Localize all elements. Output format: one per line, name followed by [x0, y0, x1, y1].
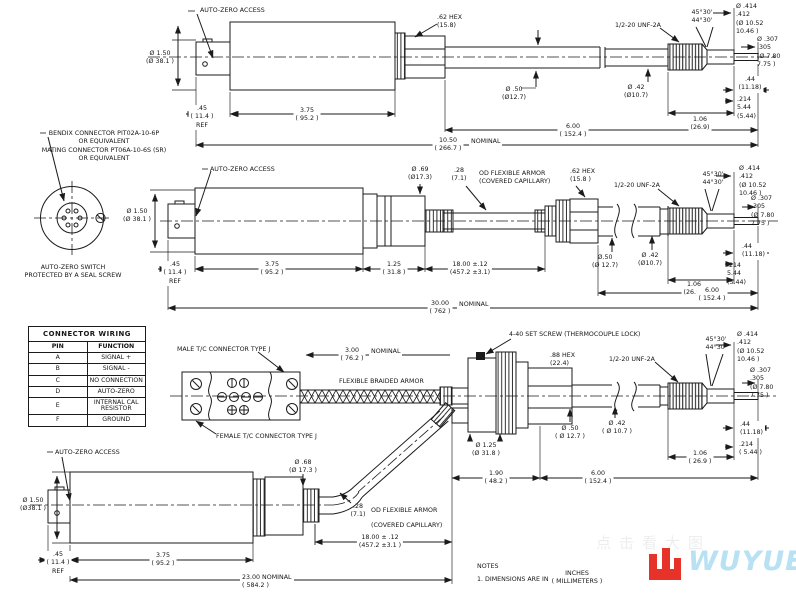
- row2-dia-42-label: Ø .42 (Ø10.7): [638, 252, 662, 269]
- row3-dia-50-label: Ø .50 ( Ø 12.7 ): [555, 425, 585, 442]
- table-title: CONNECTOR WIRING: [29, 327, 146, 342]
- function-cell: INTERNAL CAL RESISTOR: [87, 397, 146, 414]
- row2-dim-375-label: 3.75 ( 95.2 ): [259, 261, 286, 278]
- connector-wiring-table: CONNECTOR WIRING PIN FUNCTION ASIGNAL + …: [28, 326, 146, 427]
- row2-dim-44-label: .44 (11.18): [740, 243, 767, 260]
- row3-female-tc-label: FEMALE T/C CONNECTOR TYPE J: [216, 433, 317, 441]
- bendix-callout: BENDIX CONNECTOR PIT02A-10-6P OR EQUIVAL…: [42, 130, 167, 163]
- pin-cell: B: [29, 364, 88, 375]
- row3-dim-600-label: 6.00 ( 152.4 ): [583, 470, 614, 487]
- row4-auto-zero-label: AUTO-ZERO ACCESS: [55, 449, 120, 457]
- function-cell: AUTO-ZERO: [87, 386, 146, 397]
- row3-dia-307-label: Ø .307 .305 (Ø 7.80 7.75 ): [750, 367, 773, 400]
- row1-hex-label: .62 HEX (15.8): [437, 14, 462, 31]
- row2-dia-414-label: Ø .414 .412 (Ø 10.52 10.46 ): [739, 165, 766, 198]
- row1-dim-600-label: 6.00 ( 152.4 ): [558, 123, 589, 140]
- row4-dim-45-label: .45 ( 11.4 ) REF: [45, 551, 72, 576]
- table-row: BSIGNAL -: [29, 364, 146, 375]
- row3-dim-106-label: 1.06 ( 26.9 ): [687, 450, 714, 467]
- function-cell: SIGNAL -: [87, 364, 146, 375]
- table-row: ASIGNAL +: [29, 353, 146, 364]
- row3-set-screw-label: 4-40 SET SCREW (THERMOCOUPLE LOCK): [509, 331, 640, 339]
- table-row: FGROUND: [29, 415, 146, 426]
- pin-cell: D: [29, 386, 88, 397]
- row1-dia-307-label: Ø .307 .305 (Ø 7.80 7.75 ): [757, 36, 780, 69]
- row1-dim-375-label: 3.75 ( 95.2 ): [294, 107, 321, 124]
- row4-armor-size-label: .28 (7.1): [351, 503, 366, 520]
- row4-dia-150-label: Ø 1.50 (Ø38.1 ): [20, 497, 46, 514]
- function-cell: GROUND: [87, 415, 146, 426]
- drawing-sheet: AUTO-ZERO ACCESS Ø 1.50 (Ø 38.1 ) .62 HE…: [0, 0, 796, 609]
- row1-dim-45-label: .45 ( 11.4 ) REF: [189, 105, 216, 130]
- function-cell: NO CONNECTION: [87, 375, 146, 386]
- row1-dim-214-label: .214 5.44 (5.44): [737, 96, 756, 121]
- row3-dia-414-label: Ø .414 .412 (Ø 10.52 10.46 ): [737, 331, 764, 364]
- row2-chamfer-label: 45°30' 44°30': [703, 171, 724, 188]
- row1-chamfer-label: 45°30' 44°30': [692, 9, 713, 26]
- row2-armor-size-label: .28 (7.1): [452, 167, 467, 184]
- row1-auto-zero-label: AUTO-ZERO ACCESS: [200, 7, 265, 15]
- row3-dim-190-label: 1.90 ( 48.2 ): [483, 470, 510, 487]
- row1-dia-150-label: Ø 1.50 (Ø 38.1 ): [146, 50, 174, 67]
- row1-dim-106-label: 1.06 (26.9): [689, 116, 712, 133]
- row1-dia-50-label: Ø .50 (Ø12.7): [502, 86, 526, 103]
- pin-cell: C: [29, 375, 88, 386]
- row3-male-tc-label: MALE T/C CONNECTOR TYPE J: [177, 346, 270, 354]
- row4-dim-1800-label: 18.00 ± .12 (457.2 ±3.1 ): [357, 534, 403, 551]
- row4-dim-2300-label: 23.00 NOMINAL ( 584.2 ): [240, 574, 294, 591]
- row3-hex-88-label: .88 HEX (22.4): [550, 352, 575, 369]
- row1-dim-44-label: .44 (11.18): [737, 76, 764, 93]
- row2-dim-3000-label: 30.00 ( 762 ): [428, 300, 453, 317]
- row3-chamfer-label: 45°30' 44°30': [706, 336, 727, 353]
- table-row: EINTERNAL CAL RESISTOR: [29, 397, 146, 414]
- row2-dim-214-label: .214 5.44 (5.44): [727, 262, 746, 287]
- row2-dim-1800-label: 18.00 ±.12 (457.2 ±3.1): [448, 261, 492, 278]
- row2-hex-label: .62 HEX (15.8 ): [570, 168, 595, 185]
- row1-dia-42-label: Ø .42 (Ø10.7): [624, 84, 648, 101]
- row2-dia-50-label: Ø.50 (Ø 12.7): [592, 254, 618, 271]
- pin-cell: E: [29, 397, 88, 414]
- row1-nominal-label: NOMINAL: [469, 138, 502, 146]
- row2-armor-label: OD FLEXIBLE ARMOR (COVERED CAPILLARY): [479, 170, 550, 187]
- notes-line1: 1. DIMENSIONS ARE IN: [477, 576, 549, 584]
- row3-thread-label: 1/2-20 UNF-2A: [609, 356, 655, 364]
- row1-dia-414-label: Ø .414 .412 (Ø 10.52 10.46 ): [736, 3, 763, 36]
- row1-transducer: [148, 8, 778, 147]
- row3-braided-armor-label: FLEXIBLE BRAIDED ARMOR: [337, 378, 426, 386]
- function-cell: SIGNAL +: [87, 353, 146, 364]
- row3-dia-125-label: Ø 1.25 (Ø 31.8 ): [472, 442, 500, 459]
- row4-dia-68-label: Ø .68 (Ø 17.3 ): [289, 459, 317, 476]
- row2-thread-label: 1/2-20 UNF-2A: [614, 182, 660, 190]
- pin-cell: A: [29, 353, 88, 364]
- table-row: DAUTO-ZERO: [29, 386, 146, 397]
- row3-dim-44-label: .44 (11.18): [738, 421, 765, 438]
- notes-title: NOTES: [477, 563, 499, 571]
- row2-dia-69-label: Ø .69 (Ø17.3): [408, 166, 432, 183]
- auto-zero-switch-caption: AUTO-ZERO SWITCH PROTECTED BY A SEAL SCR…: [25, 264, 122, 281]
- wuyue-logo: WUYUE: [648, 547, 796, 581]
- table-col-function: FUNCTION: [87, 341, 146, 352]
- row3-nominal-label: NOMINAL: [369, 348, 402, 356]
- row2-dim-45-label: .45 ( 11.4 ) REF: [162, 261, 189, 286]
- row2-auto-zero-label: AUTO-ZERO ACCESS: [210, 166, 275, 174]
- row1-thread-label: 1/2-20 UNF-2A: [615, 22, 661, 30]
- row4-dim-375-label: 3.75 ( 95.2 ): [150, 552, 177, 569]
- row3-dim-214-label: .214 ( 5.44 ): [739, 441, 762, 458]
- row2-dia-150-label: Ø 1.50 (Ø 38.1 ): [123, 208, 151, 225]
- row1-dim-1050-label: 10.50 ( 266.7 ): [433, 137, 464, 154]
- row3-dim-300-label: 3.00 ( 76.2 ): [339, 347, 366, 364]
- wuyue-logo-glyph: [648, 547, 682, 581]
- row2-dia-307-label: Ø .307 .305 (Ø 7.80 7.75 ): [751, 195, 774, 228]
- row2-nominal-label: NOMINAL: [457, 301, 490, 309]
- row2-dim-125-label: 1.25 ( 31.8 ): [381, 261, 408, 278]
- notes-units: INCHES ( MILLIMETERS ): [552, 570, 603, 587]
- row2-dim-600-label: 6.00 ( 152.4 ): [697, 287, 728, 304]
- table-col-pin: PIN: [29, 341, 88, 352]
- row3-dia-42-label: Ø .42 ( Ø 10.7 ): [602, 420, 632, 437]
- wuyue-logo-text: WUYUE: [688, 547, 796, 577]
- pin-cell: F: [29, 415, 88, 426]
- table-row: CNO CONNECTION: [29, 375, 146, 386]
- row4-armor-label: OD FLEXIBLE ARMOR (COVERED CAPILLARY): [371, 503, 442, 534]
